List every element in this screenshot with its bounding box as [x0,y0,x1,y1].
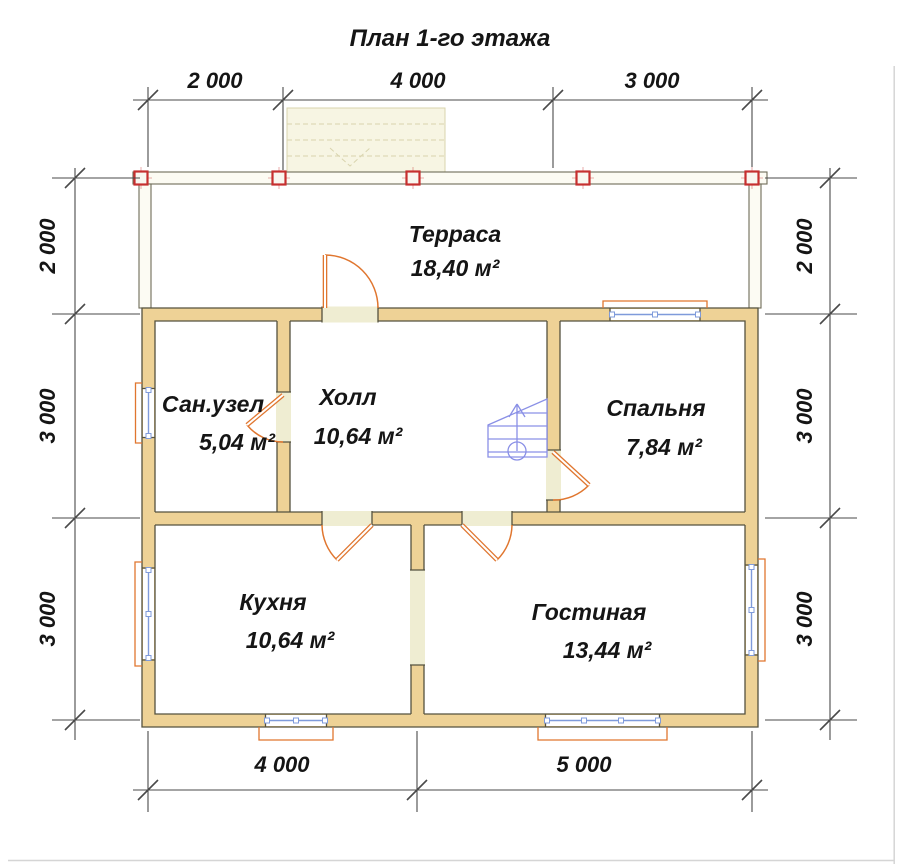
room-area-terrace: 18,40 м² [411,255,501,281]
dim-top-3: 3 000 [624,68,680,93]
dimension-bottom: 4 000 5 000 [133,731,768,812]
dim-bottom-1: 4 000 [253,752,310,777]
room-name-bedroom: Спальня [606,395,706,421]
dim-right-3: 3 000 [792,591,817,647]
floor-plan-drawing: План 1-го этажа [0,0,900,866]
window-kitchen-left [135,562,155,666]
page-title: План 1-го этажа [350,25,551,52]
room-name-terrace: Терраса [409,221,502,247]
post-icon [572,167,594,189]
dim-right-1: 2 000 [792,218,817,275]
dim-right-2: 3 000 [792,388,817,444]
room-labels: Терраса 18,40 м² Сан.узел 5,04 м² Холл 1… [162,221,706,663]
stairs-icon [488,399,547,460]
window-bathroom-left [136,383,156,443]
dim-bottom-2: 5 000 [556,752,612,777]
window-living-right [745,559,765,661]
dim-left-3: 3 000 [35,591,60,647]
window-bedroom-top [603,301,707,321]
door-living-room [462,525,512,560]
interior-walls [149,315,751,720]
dim-left-2: 3 000 [35,388,60,444]
dim-top-1: 2 000 [186,68,243,93]
door-front-entrance [325,255,378,308]
dimension-left: 2 000 3 000 3 000 [35,168,140,740]
door-kitchen [322,525,372,560]
dim-top-2: 4 000 [389,68,446,93]
room-area-bathroom: 5,04 м² [199,429,276,455]
room-name-kitchen: Кухня [239,589,307,615]
dim-left-1: 2 000 [35,218,60,275]
room-name-hall: Холл [317,384,376,410]
dimension-top: 2 000 4 000 3 000 [133,68,768,170]
wall-openings [276,307,561,666]
room-area-bedroom: 7,84 м² [626,434,703,460]
room-area-hall: 10,64 м² [314,423,404,449]
room-name-living: Гостиная [532,599,647,625]
room-area-kitchen: 10,64 м² [246,627,336,653]
dimension-right: 2 000 3 000 3 000 [765,168,857,740]
room-name-bathroom: Сан.узел [162,391,264,417]
room-area-living: 13,44 м² [563,637,653,663]
floor-plan-page: План 1-го этажа [0,0,900,866]
entrance-steps-icon [287,108,445,172]
